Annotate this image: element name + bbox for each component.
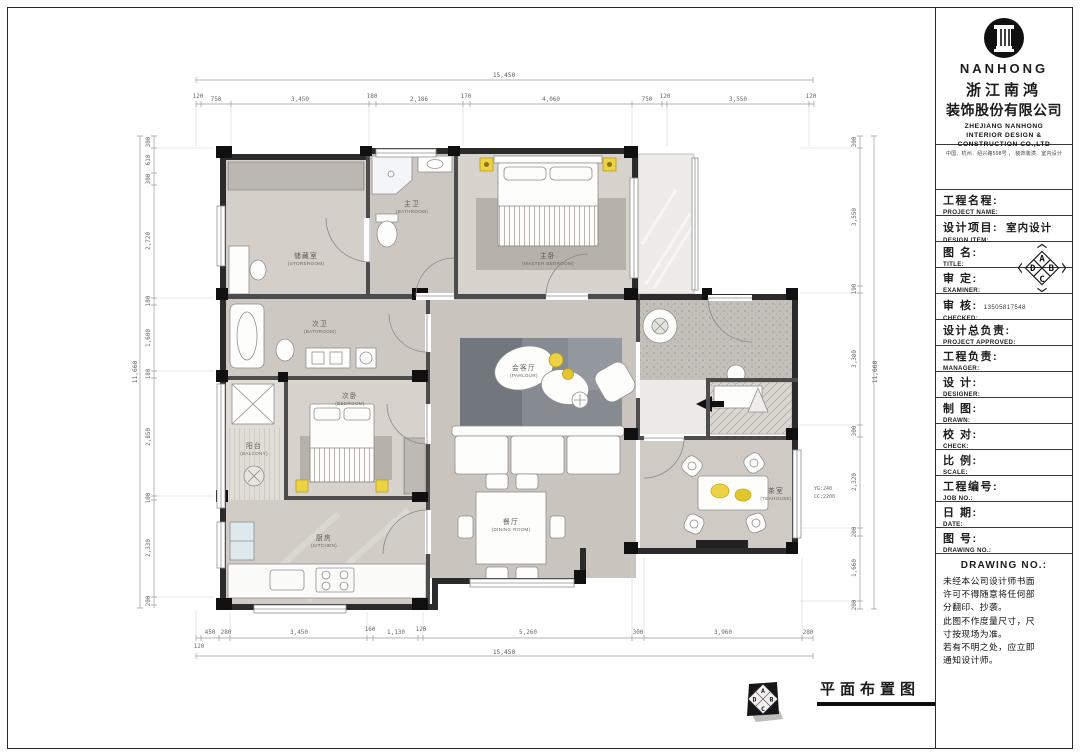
notice-title: DRAWING NO.: [943,560,1065,571]
field-job-no: 工程编号: JOB NO.: [936,476,1072,502]
svg-text:5,260: 5,260 [519,629,537,636]
washer [356,348,376,368]
sofa-seat [511,436,564,474]
svg-text:100: 100 [145,492,152,503]
svg-text:120: 120 [416,626,427,633]
svg-text:(BEDROOM): (BEDROOM) [335,401,365,406]
svg-text:D: D [753,696,757,704]
svg-text:(BALCONY): (BALCONY) [240,451,268,456]
svg-text:120: 120 [660,93,671,100]
svg-text:190: 190 [851,283,858,294]
svg-text:A: A [761,687,765,695]
svg-text:180: 180 [145,295,152,306]
copyright-notice: DRAWING NO.: 未经本公司设计师书面 许可不得随意将任何部 分翻印、抄… [936,554,1072,748]
svg-text:120: 120 [806,93,817,100]
nightstand [296,480,308,492]
room-label-tea: 茶室 [768,486,784,495]
dim-top-overall: 15,450 [493,72,516,79]
svg-text:3,550: 3,550 [729,96,747,103]
wardrobe [404,438,426,494]
svg-text:(DINING ROOM): (DINING ROOM) [492,527,531,532]
svg-text:A: A [1039,254,1045,265]
company-name-cn-2: 装饰股份有限公司 [943,100,1065,120]
svg-text:(BATHROOM): (BATHROOM) [396,209,428,214]
title-block: NANHONG 浙江南鸿 装饰股份有限公司 ZHEJIANG NANHONG I… [935,8,1072,748]
svg-text:YG:240: YG:240 [814,486,832,492]
company-header: NANHONG 浙江南鸿 装饰股份有限公司 ZHEJIANG NANHONG I… [936,8,1072,145]
field-examiner: 审 定: EXAMINER: [936,268,1072,294]
drawing-footer: A B C D 平面布置图 [735,672,935,732]
svg-text:170: 170 [461,93,472,100]
svg-text:(KITCHEN): (KITCHEN) [311,543,337,548]
svg-text:120: 120 [193,93,204,100]
dim-right-overall: 11,660 [872,361,879,384]
svg-text:2,330: 2,330 [145,539,152,557]
field-manager: 工程负责: MANAGER: [936,346,1072,372]
field-designer: 设 计: DESIGNER: [936,372,1072,398]
svg-text:3,380: 3,380 [851,350,858,368]
svg-text:120: 120 [194,643,205,650]
svg-text:180: 180 [367,93,378,100]
svg-text:3,450: 3,450 [290,629,308,636]
room-label-second-bed: 次卧 [342,391,358,400]
double-vanity [306,348,350,368]
storage-chair [250,260,266,280]
dining-chair [486,474,508,489]
dining-chair [550,516,565,538]
svg-text:200: 200 [851,526,858,537]
storage-shelving [228,162,364,190]
storage-desk [229,246,249,294]
window-annotation: YG:240 CC:2200 [814,486,835,500]
bathtub [230,304,264,368]
svg-text:(BATHROOM): (BATHROOM) [304,329,336,334]
field-checked: 审 核:13505817548 CHECKED: [936,294,1072,320]
room-label-master-bed: 主卧 [540,251,556,260]
dining-chair [516,474,538,489]
svg-text:(STOREROOM): (STOREROOM) [288,261,325,266]
svg-text:180: 180 [145,368,152,379]
north-compass-icon: A B C D [743,680,783,722]
svg-text:3,550: 3,550 [851,208,858,226]
field-check: 校 对: CHECK: [936,424,1072,450]
checked-phone: 13505817548 [984,305,1026,311]
field-project-name: 工程名程: PROJECT NAME: [936,190,1072,216]
field-drawn: 制 图: DRAWN: [936,398,1072,424]
svg-text:2,720: 2,720 [145,232,152,250]
svg-text:200: 200 [145,595,152,606]
floor-plan-svg: 储藏室 (STOREROOM) 主卫 (BATHROOM) 主卧 (MASTER… [8,8,935,748]
tea-table [698,476,768,510]
room-label-balcony: 阳台 [246,441,262,450]
svg-text:(TEAHOUSE): (TEAHOUSE) [760,496,791,501]
svg-text:300: 300 [145,136,152,147]
dim-bottom-overall: 15,450 [493,649,516,656]
svg-text:280: 280 [221,629,232,636]
svg-text:200: 200 [851,599,858,610]
column-logo-icon [982,16,1026,60]
svg-text:C: C [761,705,765,713]
company-address-row: 中国．杭州．绍兴路598号 ， 装饰装潢．室内设计 [936,145,1072,190]
vanity [418,156,452,172]
nightstand [376,480,388,492]
svg-text:450: 450 [205,629,216,636]
field-date: 日 期: DATE: [936,502,1072,528]
svg-text:2,186: 2,186 [410,96,428,103]
plan-title: 平面布置图 [820,678,920,699]
room-label-kitchen: 厨房 [316,533,332,542]
field-project-approved: 设计总负责: PROJECT APPROVED: [936,320,1072,346]
room-label-storage: 储藏室 [294,251,318,260]
svg-text:2,850: 2,850 [145,428,152,446]
company-name-cn-1: 浙江南鸿 [943,79,1065,100]
svg-text:(MASTER BEDROOM): (MASTER BEDROOM) [522,261,574,266]
bed-headboard [494,156,602,163]
svg-text:3,450: 3,450 [291,96,309,103]
kitchen-counter [228,564,426,598]
svg-text:750: 750 [211,96,222,103]
room-label-parlour: 会客厅 [512,363,536,372]
field-scale: 比 例: SCALE: [936,450,1072,476]
svg-text:300: 300 [145,173,152,184]
dim-left-overall: 11,660 [132,361,139,384]
svg-text:160: 160 [365,626,376,633]
drawing-sheet: 储藏室 (STOREROOM) 主卫 (BATHROOM) 主卧 (MASTER… [0,0,1080,756]
svg-text:300: 300 [851,136,858,147]
svg-text:3,960: 3,960 [714,629,732,636]
sofa-seat [567,436,620,474]
design-item-value: 室内设计 [1006,222,1052,234]
floor-plan-drawing: 储藏室 (STOREROOM) 主卫 (BATHROOM) 主卧 (MASTER… [8,8,935,748]
toilet [377,221,397,247]
brand-name: NANHONG [943,61,1065,76]
svg-text:300: 300 [851,425,858,436]
svg-text:1,130: 1,130 [387,629,405,636]
svg-text:1,600: 1,600 [145,329,152,347]
svg-text:(PARLOUR): (PARLOUR) [510,373,538,378]
field-design-item: 设计项目:室内设计 DESIGN ITEM: [936,216,1072,242]
dining-chair [458,516,473,538]
svg-text:1,660: 1,660 [851,559,858,577]
svg-text:4,060: 4,060 [542,96,560,103]
sofa-seat [455,436,508,474]
field-drawing-no: 图 号: DRAWING NO.: [936,528,1072,554]
room-label-second-bath: 次卫 [312,319,328,328]
tea-sideboard [696,540,748,549]
svg-text:CC:2200: CC:2200 [814,494,835,500]
toilet [276,339,294,361]
sofa-back [452,426,624,436]
company-name-en-1: ZHEJIANG NANHONG [943,123,1065,132]
svg-text:2,320: 2,320 [851,473,858,491]
room-label-dining: 餐厅 [503,517,519,526]
svg-text:610: 610 [145,154,152,165]
room-label-master-bath: 主卫 [404,199,420,208]
svg-text:280: 280 [803,629,814,636]
svg-text:B: B [770,696,774,704]
svg-text:300: 300 [633,629,644,636]
company-name-en-2: INTERIOR DESIGN & [943,132,1065,141]
svg-text:750: 750 [642,96,653,103]
plan-title-underline [817,702,935,706]
field-title: 图 名: TITLE: A B C D [936,242,1072,268]
company-address: 中国．杭州．绍兴路598号 ， 装饰装潢．室内设计 [943,150,1065,157]
